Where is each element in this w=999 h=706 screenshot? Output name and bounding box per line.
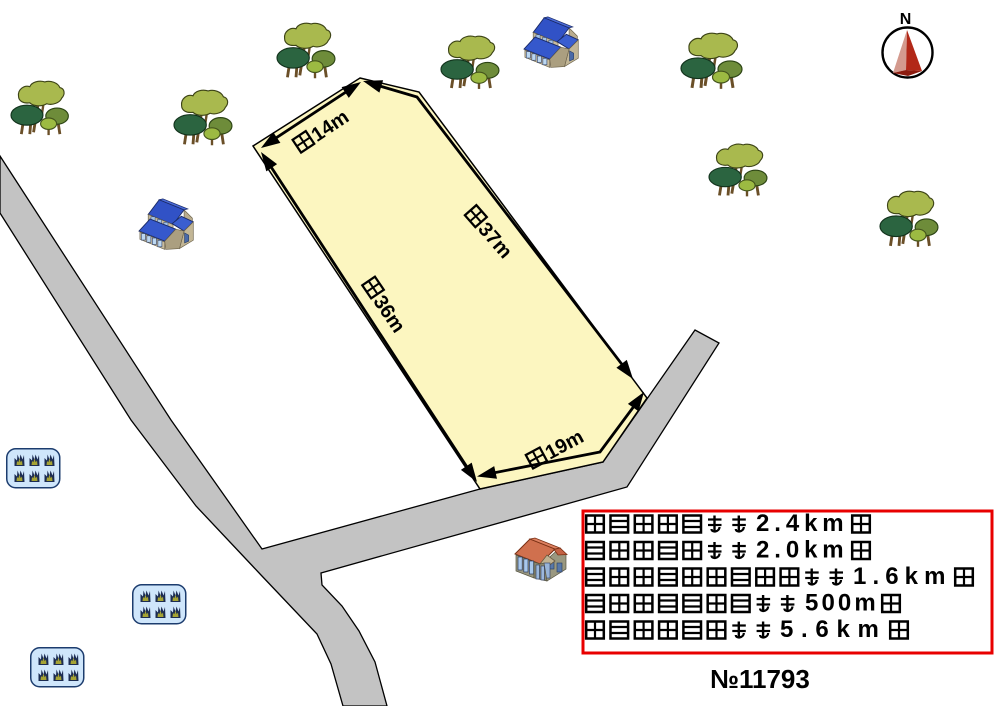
svg-text:5.6km: 5.6km — [780, 616, 887, 643]
svg-text:2.0km: 2.0km — [756, 537, 849, 564]
svg-text:2.4km: 2.4km — [756, 510, 849, 537]
svg-text:1.6km: 1.6km — [853, 563, 952, 590]
svg-text:500m: 500m — [805, 590, 879, 617]
svg-text:N: N — [900, 11, 912, 28]
svg-text:№11793: №11793 — [710, 664, 810, 694]
